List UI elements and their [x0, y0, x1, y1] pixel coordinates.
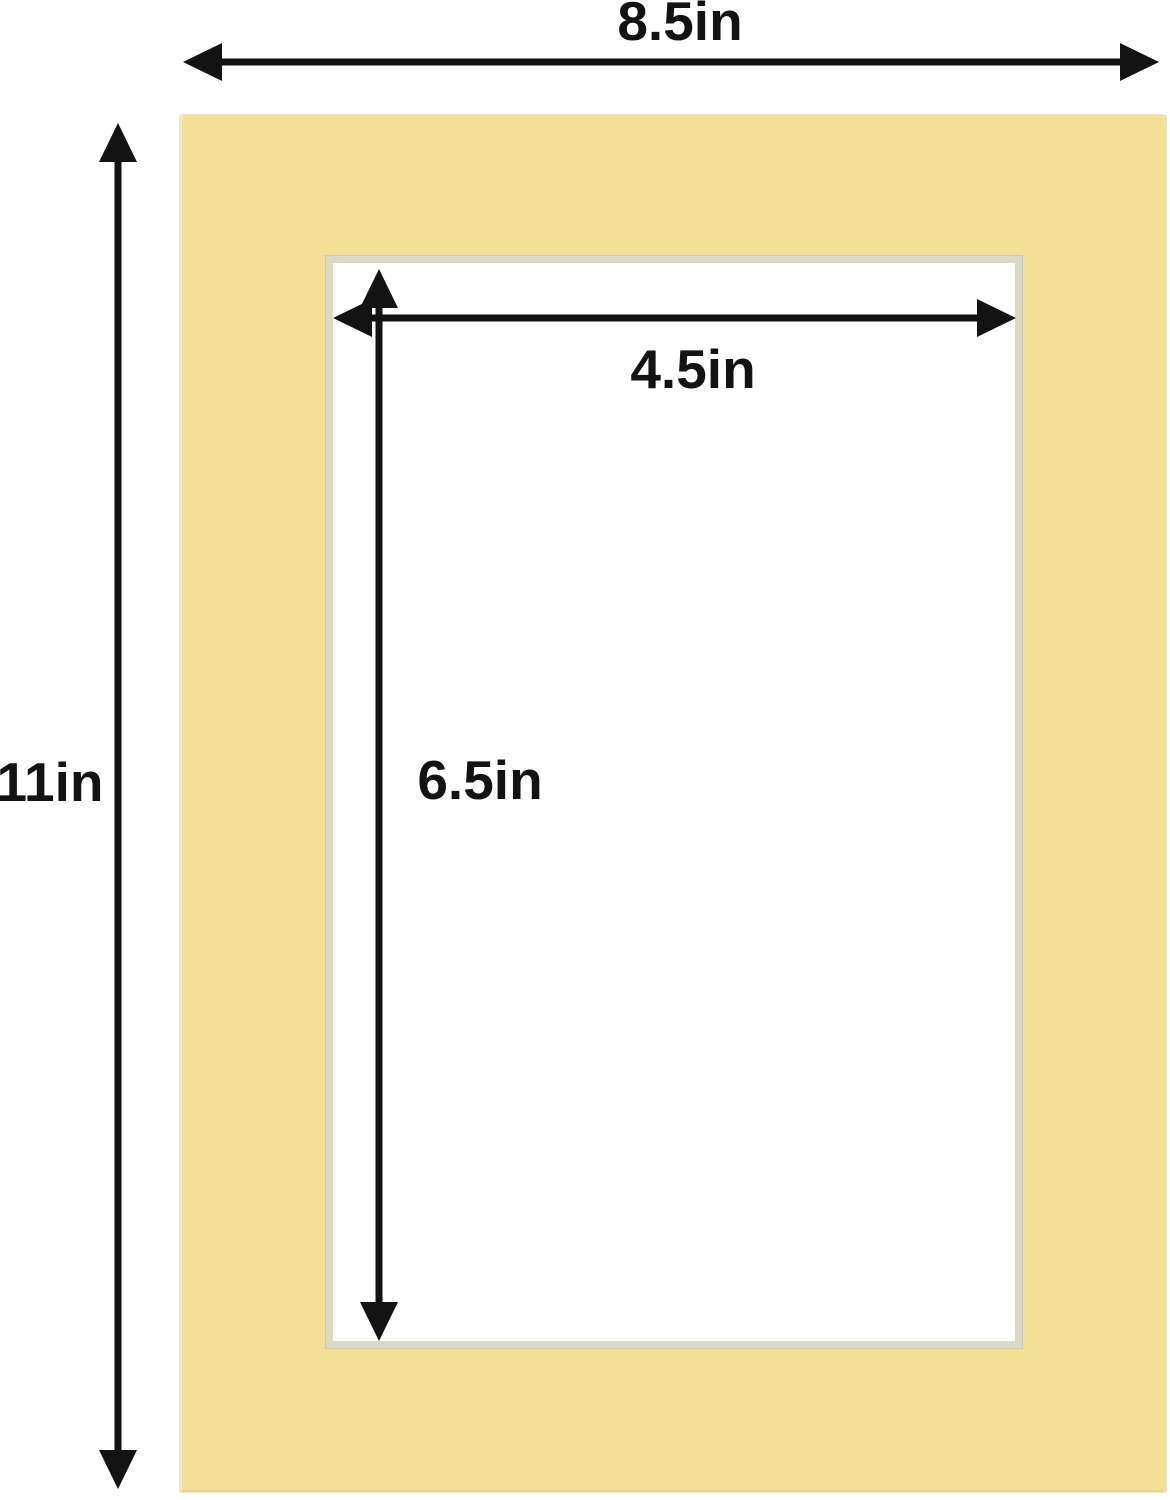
opening-height-arrow — [360, 269, 398, 1341]
opening-width-arrow — [333, 299, 1016, 337]
opening-height-label: 6.5in — [417, 753, 542, 808]
outer-height-arrow — [99, 123, 137, 1489]
diagram-canvas: 8.5in 11in 4.5in 6.5in — [0, 0, 1170, 1500]
outer-height-label: 11in — [0, 755, 104, 810]
outer-width-label: 8.5in — [617, 0, 742, 49]
dimension-arrows — [0, 0, 1170, 1500]
opening-width-label: 4.5in — [630, 342, 755, 397]
